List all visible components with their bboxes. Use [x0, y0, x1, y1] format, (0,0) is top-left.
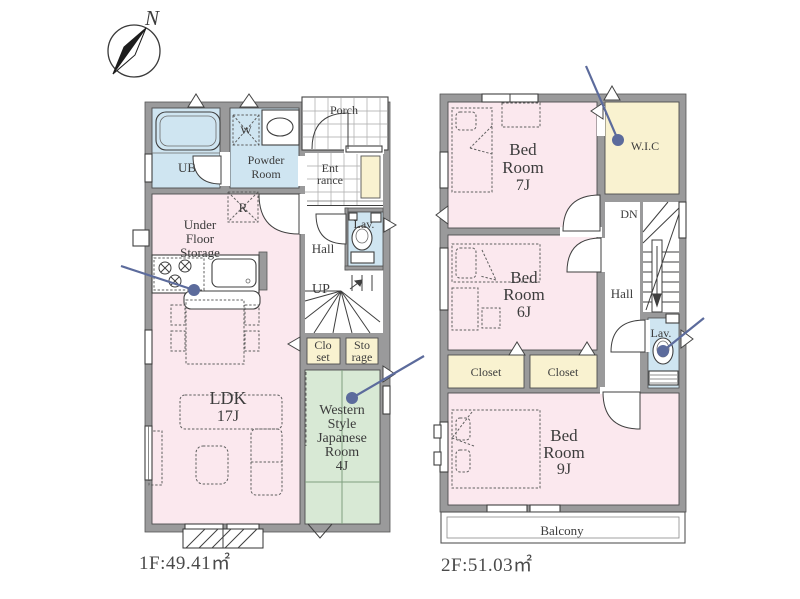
bed7-size-label: 7J: [516, 177, 530, 194]
floor2-plan: Bed Room 7J W.I.C DN Bed Room 6J Hall La…: [434, 86, 693, 576]
japanese-room-label2: Style: [328, 417, 357, 432]
ldk-label: LDK: [210, 388, 247, 408]
shutter-box: [434, 425, 441, 438]
floor1-plan: UB Powder Room W Porch Ent rance Lav. Ha…: [133, 94, 396, 574]
japanese-room-label3: Japanese: [317, 431, 367, 446]
window: [440, 152, 448, 188]
closet1f-label2: set: [316, 350, 330, 364]
hall1-label: Hall: [312, 241, 335, 256]
kitchen-vent-box: [133, 230, 149, 246]
camera-dot-wic: [612, 134, 624, 146]
lav1-wall-bottom: [345, 266, 383, 270]
compass-needle-white-half: [113, 28, 146, 74]
powder-door-opening: [298, 156, 307, 186]
camera-dot-kitchen: [188, 284, 200, 296]
under-floor-label: Under: [184, 217, 217, 232]
shutter-box: [434, 452, 441, 465]
camera-dot-japanese-room: [346, 392, 358, 404]
window: [487, 505, 527, 512]
bed9-label2: Room: [543, 443, 585, 462]
compass-north-label: N: [144, 6, 160, 30]
bed7-label: Bed: [509, 140, 537, 159]
porch-label: Porch: [330, 103, 358, 117]
powder-room-label2: Room: [251, 167, 281, 181]
window: [679, 202, 686, 238]
dn-label: DN: [620, 207, 638, 221]
floor1-area-label: 1F:49.41㎡: [139, 551, 231, 574]
wood-deck: [183, 529, 263, 548]
window: [383, 386, 390, 414]
roof-vent-icon: [604, 86, 620, 100]
roof-vent-icon: [240, 94, 258, 107]
window: [145, 330, 152, 364]
under-floor-label2: Floor: [186, 231, 215, 246]
up-label: UP: [312, 282, 330, 297]
entrance-label2: rance: [317, 173, 343, 187]
compass-icon: N: [108, 6, 160, 77]
japanese-room-size-label: 4J: [336, 459, 349, 474]
camera-dot-lav2: [657, 345, 669, 357]
closet-b-label: Closet: [548, 365, 579, 379]
closet-a-label: Closet: [471, 365, 502, 379]
wic-label: W.I.C: [631, 139, 659, 153]
floor2-area-label: 2F:51.03㎡: [441, 553, 533, 576]
kitchen-wall-stub: [259, 252, 267, 290]
floor-plan-drawing: N: [0, 0, 800, 599]
ldk-size-label: 17J: [217, 408, 239, 425]
front-door-leaf: [346, 146, 382, 152]
ub-label: UB: [178, 160, 196, 175]
storage-label2: rage: [352, 350, 373, 364]
japanese-room-label4: Room: [325, 445, 359, 460]
powder-room-label: Powder: [248, 153, 285, 167]
roof-vent-icon: [188, 94, 204, 107]
fridge-label: R: [239, 200, 248, 215]
washer-label: W: [240, 123, 252, 137]
bed9-size-label: 9J: [557, 461, 571, 478]
hall2-label: Hall: [611, 286, 634, 301]
lav2-basin-icon: [666, 314, 679, 323]
bed7-label2: Room: [502, 158, 544, 177]
lav1-label: Lav.: [354, 217, 375, 231]
lav2-label: Lav.: [651, 326, 672, 340]
room-ldk: [152, 194, 300, 524]
shoe-cabinet: [361, 156, 380, 198]
bed6-label2: Room: [503, 285, 545, 304]
window: [145, 154, 152, 182]
japanese-room-label: Western: [319, 403, 365, 418]
window: [530, 505, 560, 512]
balcony-label: Balcony: [540, 523, 584, 538]
toilet-1f-tank: [351, 252, 374, 263]
window: [440, 248, 448, 310]
bed6-size-label: 6J: [517, 304, 531, 321]
lav1-wall-top: [345, 208, 383, 212]
under-floor-label3: Storage: [180, 245, 220, 260]
